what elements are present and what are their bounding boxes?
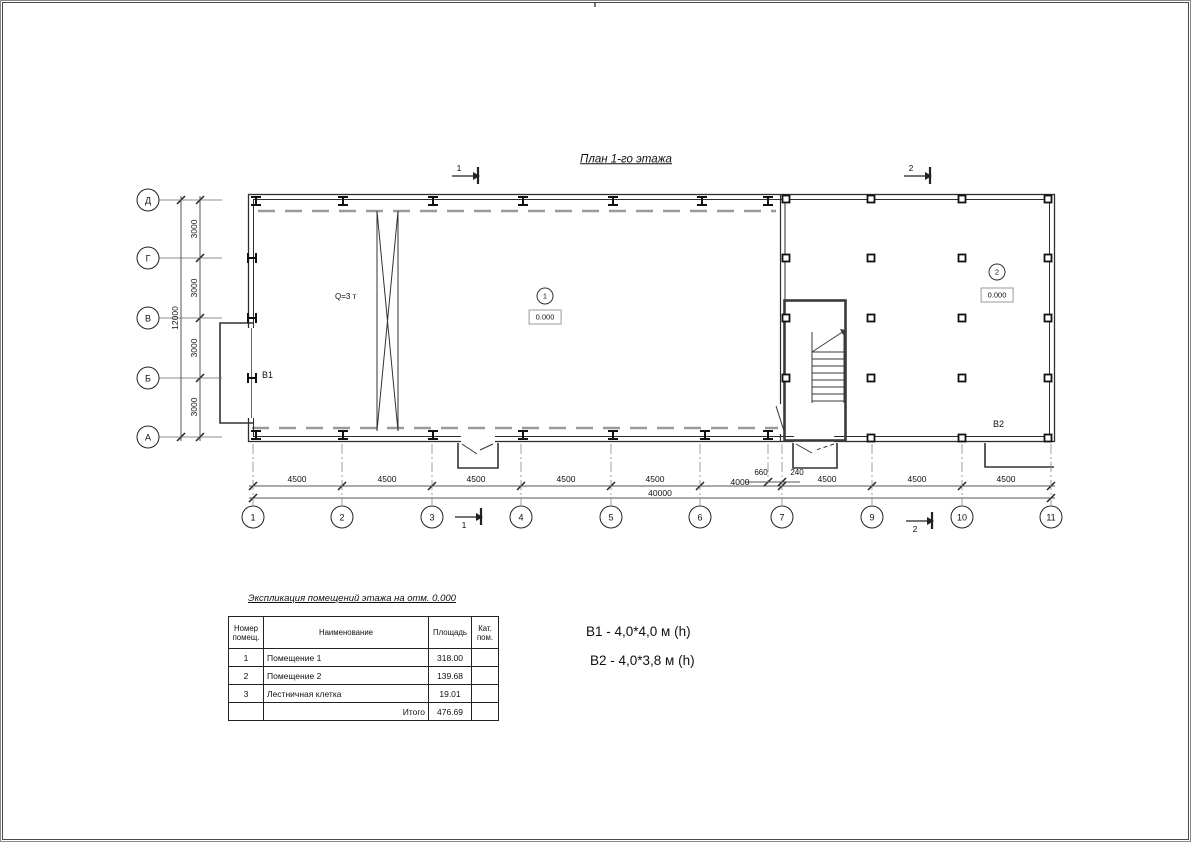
explication-title: Экспликация помещений этажа на отм. 0.00… <box>248 593 456 604</box>
grid-row-label: Д <box>145 195 151 205</box>
grid-row-label: Г <box>146 253 151 263</box>
dim-bottom-6: 4000 <box>731 478 750 487</box>
grid-col-bubble-10: 10 <box>951 506 974 529</box>
dim-bottom-1: 4500 <box>288 475 307 484</box>
grid-col-label: 1 <box>250 512 255 522</box>
grid-col-bubble-11: 11 <box>1040 506 1063 529</box>
room-marker-2: 2 <box>989 264 1006 281</box>
dim-bottom-9: 4500 <box>997 475 1016 484</box>
section-mark-bottom-1: 1 <box>462 521 467 530</box>
table-row: 1 Помещение 1 318.00 <box>229 649 499 667</box>
dim-bottom-2: 4500 <box>378 475 397 484</box>
dim-left-2: 3000 <box>190 279 199 298</box>
porch-col7 <box>793 443 837 468</box>
dim-bottom-8: 4500 <box>908 475 927 484</box>
section-mark-top-1: 1 <box>457 164 462 173</box>
total-value: 476.69 <box>429 703 472 721</box>
gate-b1-label: В1 <box>262 371 273 380</box>
cell-cat <box>472 703 499 721</box>
stairwell <box>785 301 847 441</box>
table-header-name: Наименование <box>264 617 429 649</box>
grid-col-bubble-6: 6 <box>689 506 712 529</box>
grid-row-label: В <box>145 313 151 323</box>
total-label: Итого <box>264 703 429 721</box>
cell-name: Помещение 2 <box>264 667 429 685</box>
square-columns <box>783 196 1052 442</box>
section-mark-bottom-2: 2 <box>913 525 918 534</box>
dim-left-4: 3000 <box>190 398 199 417</box>
grid-col-bubble-9: 9 <box>861 506 884 529</box>
dim-left-3: 3000 <box>190 339 199 358</box>
grid-col-label: 3 <box>429 512 434 522</box>
grid-col-label: 4 <box>518 512 523 522</box>
building-walls <box>249 195 1055 442</box>
floorplan-linework <box>0 0 1191 842</box>
cell-cat <box>472 685 499 703</box>
table-header-area: Площадь <box>429 617 472 649</box>
section-mark-top-2: 2 <box>909 164 914 173</box>
porch-mid <box>458 443 498 468</box>
room-marker-1: 1 <box>537 288 554 305</box>
drawing-title: План 1-го этажа <box>580 154 672 166</box>
dim-bottom-3: 4500 <box>467 475 486 484</box>
cell-num: 3 <box>229 685 264 703</box>
grid-col-bubble-2: 2 <box>331 506 354 529</box>
grid-row-label: Б <box>145 373 151 383</box>
elevation-mark-room1: 0.000 <box>529 310 562 325</box>
cell-num: 2 <box>229 667 264 685</box>
elevation-mark-room2: 0.000 <box>981 288 1014 303</box>
dim-small-240: 240 <box>790 469 803 477</box>
grid-col-label: 10 <box>957 512 967 522</box>
grid-col-label: 11 <box>1046 512 1055 522</box>
grid-row-label: А <box>145 432 151 442</box>
gate-legend-b1: В1 - 4,0*4,0 м (h) <box>586 624 691 639</box>
gate-b2-label: В2 <box>993 420 1004 429</box>
ibeam-columns <box>248 197 773 439</box>
cell-cat <box>472 667 499 685</box>
table-row: 2 Помещение 2 139.68 <box>229 667 499 685</box>
table-total-row: Итого 476.69 <box>229 703 499 721</box>
grid-col-label: 9 <box>869 512 874 522</box>
dim-small-660: 660 <box>754 469 767 477</box>
grid-col-bubble-4: 4 <box>510 506 533 529</box>
crane-runway <box>377 211 398 431</box>
grid-col-label: 5 <box>608 512 613 522</box>
grid-col-bubble-7: 7 <box>771 506 794 529</box>
annexe-b2 <box>985 443 1054 467</box>
cell-area: 19.01 <box>429 685 472 703</box>
grid-row-bubble-a: А <box>137 426 160 449</box>
gate-legend-b2: В2 - 4,0*3,8 м (h) <box>590 653 695 668</box>
section-markers <box>452 167 934 529</box>
cell-name: Лестничная клетка <box>264 685 429 703</box>
cell-num: 1 <box>229 649 264 667</box>
dim-bottom-4: 4500 <box>557 475 576 484</box>
dim-bottom-5: 4500 <box>646 475 665 484</box>
room-marker-number: 1 <box>543 292 547 301</box>
crane-rail-dashed-lines <box>252 211 788 428</box>
table-header-row: Номер помещ. Наименование Площадь Кат. п… <box>229 617 499 649</box>
drawing-sheet: План 1-го этажа 1 2 1 2 Д Г В Б А 1 2 3 … <box>0 0 1191 842</box>
dim-bottom-7: 4500 <box>818 475 837 484</box>
cell-area: 318.00 <box>429 649 472 667</box>
explication-table: Номер помещ. Наименование Площадь Кат. п… <box>228 616 499 721</box>
wall-openings <box>246 328 834 444</box>
crane-capacity-label: Q=3 т <box>335 293 356 301</box>
cell-name: Помещение 1 <box>264 649 429 667</box>
grid-row-bubble-b: Б <box>137 367 160 390</box>
grid-col-label: 7 <box>779 512 784 522</box>
grid-col-bubble-5: 5 <box>600 506 623 529</box>
grid-col-label: 6 <box>697 512 702 522</box>
cell-cat <box>472 649 499 667</box>
cell-num <box>229 703 264 721</box>
grid-row-bubble-g: Г <box>137 247 160 270</box>
grid-col-bubble-1: 1 <box>242 506 265 529</box>
grid-col-label: 2 <box>339 512 344 522</box>
table-row: 3 Лестничная клетка 19.01 <box>229 685 499 703</box>
dim-bottom-total: 40000 <box>648 489 672 498</box>
dim-left-1: 3000 <box>190 220 199 239</box>
table-header-num: Номер помещ. <box>229 617 264 649</box>
grid-row-bubble-d: Д <box>137 189 160 212</box>
table-header-cat: Кат. пом. <box>472 617 499 649</box>
grid-row-bubble-v: В <box>137 307 160 330</box>
cell-area: 139.68 <box>429 667 472 685</box>
room-marker-number: 2 <box>995 268 999 277</box>
dim-left-total: 12000 <box>171 306 180 330</box>
grid-col-bubble-3: 3 <box>421 506 444 529</box>
